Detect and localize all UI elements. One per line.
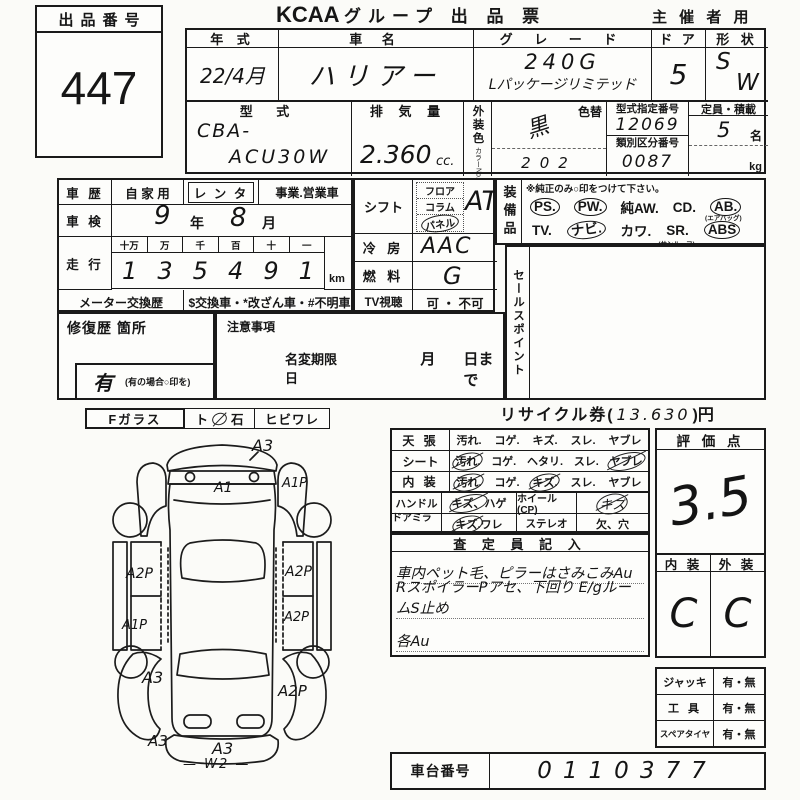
shape-w: W	[736, 70, 759, 96]
mileage-units-row: 十万 万 千 百 十 一	[112, 237, 324, 253]
seat-items: 汚れ. コゲ.ヘタリ.スレ. ヤブレ	[450, 451, 648, 472]
damage-label-right-front-door: A2P	[285, 564, 312, 580]
class-no-label: 類別区分番号	[607, 136, 688, 149]
unit-1: 一	[290, 237, 325, 252]
load-cell: kg	[689, 145, 768, 176]
equip-tv: TV.	[532, 223, 552, 238]
digit-5: 9	[253, 253, 288, 288]
stone-chip-mark	[210, 410, 228, 426]
sales-point-box: セールスポイント	[505, 245, 766, 400]
inspector-box: 査 定 員 記 入 車内ペット毛、ピラーはさみこみAu RスポイラーPアセ、下回…	[390, 533, 650, 657]
meter-history-text: $交換車・*改ざん車・#不明車	[184, 290, 355, 314]
digit-3: 5	[183, 253, 218, 288]
wheel-label: ホイール(CP)	[517, 493, 577, 514]
unit-100: 百	[219, 237, 255, 252]
vehicle-table: 年 式 車 名 グ レ ー ド ド ア 形 状 22/4月 ハリアー 240G …	[185, 28, 766, 174]
type-cert-value: 12069	[615, 115, 679, 135]
score-value: 3.5	[665, 465, 757, 538]
history-table: 車 歴 自 家 用 レ ン タ 事業.営業車 車 検 9 年 8 月 走 行 十…	[57, 178, 353, 312]
equip-ab-text: AB.	[714, 199, 737, 214]
color-no-label: カラーNo.	[473, 147, 483, 179]
sheet-title: KCAA グループ 出 品 票	[276, 2, 546, 28]
item-marked: 汚れ.	[456, 474, 481, 490]
name-change-month: 月	[420, 348, 435, 369]
equip-abs: ABS	[704, 221, 741, 239]
capacity-cell: 定員・積載 5 名 kg	[689, 102, 768, 176]
jack-value: 有・無	[714, 669, 764, 694]
item: ワレ	[481, 516, 503, 532]
car-use-private: 自 家 用	[112, 180, 184, 205]
ac-value-cell: AAC	[413, 234, 497, 262]
equipment-label-cell: 装備品	[497, 180, 522, 243]
shift-column: コラム	[417, 199, 463, 215]
sales-point-label-cell: セールスポイント	[507, 247, 530, 398]
interior-score-cell: C	[657, 572, 711, 656]
equipment-row1: PS. PW. 純AW. CD. AB.(エアバッグ)	[530, 197, 764, 217]
wheel-value: キズ	[577, 493, 648, 514]
unit-1k: 千	[183, 237, 219, 252]
shift-label: シフト	[355, 180, 413, 234]
model-line2: ACU30W	[229, 146, 330, 168]
ceiling-items: 汚れ.コゲ.キズ.スレ.ヤブレ	[450, 430, 648, 451]
sales-point-label: セールスポイント	[510, 269, 526, 377]
auction-number-label: 出品番号	[37, 7, 161, 33]
item: 汚れ.	[456, 432, 481, 448]
equip-kawa: カワ.	[621, 220, 652, 240]
shift-floor: フロア	[417, 183, 463, 199]
door-mirror-items: キズ. ワレ	[442, 514, 517, 533]
interior-label: 内 装	[392, 472, 450, 493]
chassis-label: 車台番号	[392, 754, 490, 788]
recycle-value: 13.630	[615, 405, 693, 424]
item-marked: キズ.	[455, 516, 480, 532]
item: コゲ.	[491, 453, 516, 469]
inspection-value: 9 年 8 月	[112, 205, 355, 237]
capacity-value: 5	[717, 118, 730, 142]
class-no-value-cell: 0087	[607, 149, 688, 174]
item: スレ.	[570, 474, 595, 490]
damage-label-left-rear-door: A1P	[122, 618, 147, 633]
car-use-rental: レ ン タ	[188, 182, 254, 203]
tv-value: 可 ・ 不可	[413, 290, 497, 314]
km-label: km	[329, 273, 345, 285]
inspector-line3: 各Au	[396, 619, 644, 652]
steering-items: キズ、 ハゲ	[442, 493, 517, 514]
color-code-cell: 202	[492, 148, 606, 176]
car-use-business: 事業.営業車	[259, 180, 355, 205]
car-use-rental-cell: レ ン タ	[184, 180, 259, 205]
int-ext-values: C C	[657, 572, 764, 656]
caution-label: 注意事項	[227, 318, 275, 335]
year-value-text: 22/4月	[200, 60, 265, 89]
fuel-value: G	[443, 262, 462, 290]
grade-line1: 240G	[474, 50, 651, 74]
item-marked: ヤブレ	[610, 453, 643, 469]
exterior-score: C	[724, 591, 752, 637]
exterior-score-cell: C	[711, 572, 764, 656]
displacement-number: 2.360	[360, 140, 432, 169]
class-no-value: 0087	[622, 152, 673, 172]
repair-yes-box: 有 (有の場合○印を)	[75, 363, 213, 398]
interior-score: C	[670, 591, 698, 637]
glass-opt-to: ト	[195, 409, 208, 428]
repair-box: 修復歴 箇所 有 (有の場合○印を)	[57, 312, 215, 400]
spare-tire-value: 有・無	[714, 721, 764, 746]
capacity-label: 定員・積載	[689, 102, 768, 116]
name-change-label: 名変期限日	[285, 349, 342, 387]
jack-label: ジャッキ	[657, 669, 714, 694]
shift-panel: パネル	[420, 212, 460, 234]
digit-2: 3	[147, 253, 182, 288]
digit-6: 1	[289, 253, 324, 288]
digit-4: 4	[218, 253, 253, 288]
caution-box: 注意事項 名変期限日 月 日まで	[215, 312, 505, 400]
spare-tire-row: スペアタイヤ 有・無	[657, 721, 764, 746]
brand-logo: KCAA	[276, 2, 340, 27]
grade-line2: Lパッケージリミテッド	[474, 74, 651, 94]
score-label: 評 価 点	[657, 430, 764, 450]
shape-s: S	[716, 49, 731, 75]
door-value-text: 5	[670, 58, 688, 91]
ac-value: AAC	[421, 234, 472, 259]
item-marked: キズ、	[452, 495, 485, 511]
displacement-unit: cc.	[436, 154, 454, 169]
spare-tire-label: スペアタイヤ	[657, 721, 714, 746]
item: スレ.	[574, 453, 599, 469]
color-cell: 色替 黒 202	[492, 102, 607, 176]
jack-row: ジャッキ 有・無	[657, 669, 764, 695]
score-value-cell: 3.5	[657, 450, 764, 553]
interior-score-label: 内 装	[657, 555, 711, 571]
damage-label-hood: A1	[214, 480, 232, 496]
ext-color-label: 外装色	[470, 105, 486, 146]
load-unit: kg	[749, 161, 762, 173]
capacity-unit: 名	[750, 127, 762, 144]
shift-value-cell: フロア コラム パネル AT.	[413, 180, 497, 234]
check-mark	[595, 490, 631, 517]
glass-crack-cell: ヒビワレ	[255, 408, 330, 429]
name-change-day: 日まで	[463, 348, 503, 390]
glass-strip: Fガラス ト 石 ヒビワレ	[85, 408, 330, 429]
unit-10: 十	[254, 237, 290, 252]
type-cert-label: 型式指定番号	[607, 102, 688, 115]
damage-label-right-rear-door: A2P	[284, 610, 309, 625]
year-value: 22/4月	[187, 48, 279, 102]
fuel-value-cell: G	[413, 262, 497, 290]
ceiling-label: 天 張	[392, 430, 450, 451]
shift-options: フロア コラム パネル	[416, 182, 464, 232]
equip-ab-sub: (エアバッグ)	[705, 215, 742, 223]
item-marked: キズ	[599, 494, 625, 513]
fuel-label: 燃 料	[355, 262, 413, 290]
equip-navi: ナビ.	[566, 219, 606, 241]
glass-label: Fガラス	[85, 408, 185, 429]
inspector-header: 査 定 員 記 入	[392, 535, 648, 552]
equipment-box: 装備品 ※純正のみ○印をつけて下さい。 PS. PW. 純AW. CD. AB.…	[495, 178, 766, 245]
tools-value: 有・無	[714, 695, 764, 720]
damage-label-rear-bumper: A3	[212, 739, 233, 758]
recycle-line: リサイクル券( 13.630 )円	[500, 401, 714, 425]
shape-label: 形 状	[706, 30, 768, 48]
mileage-digits-row: 1 3 5 4 9 1	[112, 253, 324, 289]
inspection-month-unit: 月	[262, 213, 276, 233]
item: ヘタリ.	[527, 453, 563, 469]
equip-sr-text: SR.	[666, 223, 689, 238]
equip-pw: PW.	[574, 198, 607, 216]
equip-sr: SR.(サンルーフ)	[666, 223, 689, 238]
color-code: 202	[521, 154, 577, 172]
recycle-label: リサイクル券(	[500, 401, 615, 425]
shift-panel-cell: パネル	[417, 215, 463, 231]
equipment-content: ※純正のみ○印をつけて下さい。 PS. PW. 純AW. CD. AB.(エアバ…	[522, 180, 764, 243]
item-marked: キズ.	[532, 474, 557, 490]
damage-label-rear-left-corner: A3	[148, 732, 168, 750]
equipment-note: ※純正のみ○印をつけて下さい。	[526, 181, 764, 195]
equip-cd: CD.	[673, 200, 696, 215]
car-use-label: 車 歴	[59, 180, 112, 205]
stereo-label: ステレオ	[517, 514, 577, 533]
accessories-table: ジャッキ 有・無 工 具 有・無 スペアタイヤ 有・無	[655, 667, 766, 748]
auction-sheet: 出品番号 447 KCAA グループ 出 品 票 主 催 者 用 年 式 車 名…	[0, 0, 800, 800]
car-name-label: 車 名	[279, 30, 474, 48]
glass-stone-cell: ト 石	[185, 408, 255, 429]
recycle-suffix: )円	[693, 401, 714, 425]
digit-1: 1	[112, 253, 147, 288]
damage-label-right-quarter: A2P	[278, 682, 307, 700]
type-cert-value-cell: 12069	[607, 115, 688, 136]
auction-number-box: 出品番号 447	[35, 5, 163, 158]
color-value: 黒	[522, 107, 553, 144]
model-line1: CBA-	[197, 120, 251, 142]
grade-label: グ レ ー ド	[474, 30, 652, 48]
item: ハゲ	[485, 495, 507, 511]
chassis-value: 0110377	[537, 758, 716, 784]
item: コゲ.	[494, 474, 519, 490]
item-marked: 汚れ.	[455, 453, 480, 469]
item: ヤブレ	[608, 432, 641, 448]
door-label: ド ア	[652, 30, 706, 48]
condition-table: 天 張 汚れ.コゲ.キズ.スレ.ヤブレ シート 汚れ. コゲ.ヘタリ.スレ. ヤ…	[390, 428, 650, 533]
ext-color-label-cell: 外装色 カラーNo.	[464, 102, 492, 176]
grade-value: 240G Lパッケージリミテッド	[474, 48, 652, 102]
tv-label: TV視聴	[355, 290, 413, 314]
equipment-label: 装備品	[500, 185, 519, 239]
stereo-value: 欠、穴	[577, 514, 648, 533]
tools-label: 工 具	[657, 695, 714, 720]
auction-number-value: 447	[37, 33, 161, 143]
door-value: 5	[652, 48, 706, 102]
damage-label-left-front-door: A2P	[126, 566, 153, 582]
door-mirror-label: ドアミラー	[392, 514, 442, 533]
inspector-line2: RスポイラーPアセ、下回り E/gルームS止め	[396, 584, 644, 619]
color-change-label: 色替	[578, 103, 602, 120]
capacity-value-cell: 5 名	[689, 116, 768, 145]
car-diagram	[100, 430, 375, 790]
item: キズ.	[532, 432, 557, 448]
mileage-label: 走 行	[59, 237, 112, 290]
equipment-row2: TV. ナビ. カワ. SR.(サンルーフ) ABS	[532, 220, 764, 240]
damage-label-w2: — W2 —	[183, 757, 250, 772]
int-ext-header: 内 装 外 装	[657, 553, 764, 572]
damage-label-right-front-fender: A1P	[282, 476, 307, 491]
model-value: CBA- ACU30W	[187, 102, 352, 176]
km-cell: km	[324, 237, 355, 290]
sheet-title-text: グループ 出 品 票	[344, 7, 546, 26]
item: コゲ.	[494, 432, 519, 448]
mileage-grid: 十万 万 千 百 十 一 1 3 5 4 9 1	[112, 237, 324, 290]
name-change-row: 名変期限日 月 日まで	[217, 348, 503, 390]
equip-ab: AB.(エアバッグ)	[710, 198, 741, 216]
inspection-label: 車 検	[59, 205, 112, 237]
item: スレ.	[570, 432, 595, 448]
repair-yes: 有	[93, 367, 113, 396]
equip-aw: 純AW.	[621, 197, 659, 217]
car-name-value: ハリアー	[279, 48, 474, 102]
unit-10k: 万	[148, 237, 184, 252]
car-name-text: ハリアー	[309, 56, 443, 93]
organizer-label: 主 催 者 用	[652, 6, 753, 27]
seat-label: シート	[392, 451, 450, 472]
glass-opt-stone: 石	[231, 409, 244, 428]
item: ヤブレ	[608, 474, 641, 490]
tools-row: 工 具 有・無	[657, 695, 764, 721]
damage-label-left-quarter: A3	[142, 668, 163, 687]
exterior-score-label: 外 装	[711, 555, 764, 571]
type-cert-cell: 型式指定番号 12069 類別区分番号 0087	[607, 102, 689, 176]
year-label: 年 式	[187, 30, 279, 48]
damage-label-front-bumper: A3	[252, 436, 273, 455]
shape-value: S W	[706, 48, 768, 102]
inspection-year: 9	[154, 201, 171, 231]
displacement-value: 2.360 cc.	[352, 102, 464, 176]
unit-100k: 十万	[112, 237, 148, 252]
chassis-box: 車台番号 0110377	[390, 752, 766, 790]
inspection-year-unit: 年	[190, 213, 204, 233]
equip-ps: PS.	[530, 198, 560, 216]
meter-history-label: メーター交換歴	[59, 290, 184, 314]
repair-label: 修復歴 箇所	[67, 318, 147, 338]
ac-label: 冷 房	[355, 234, 413, 262]
spec-table: シフト フロア コラム パネル AT. 冷 房 AAC 燃 料 G TV視聴 可…	[353, 178, 495, 312]
score-box: 評 価 点 3.5 内 装 外 装 C C	[655, 428, 766, 658]
chassis-value-cell: 0110377	[490, 754, 764, 788]
repair-note: (有の場合○印を)	[125, 375, 190, 388]
inspection-month: 8	[230, 203, 247, 233]
